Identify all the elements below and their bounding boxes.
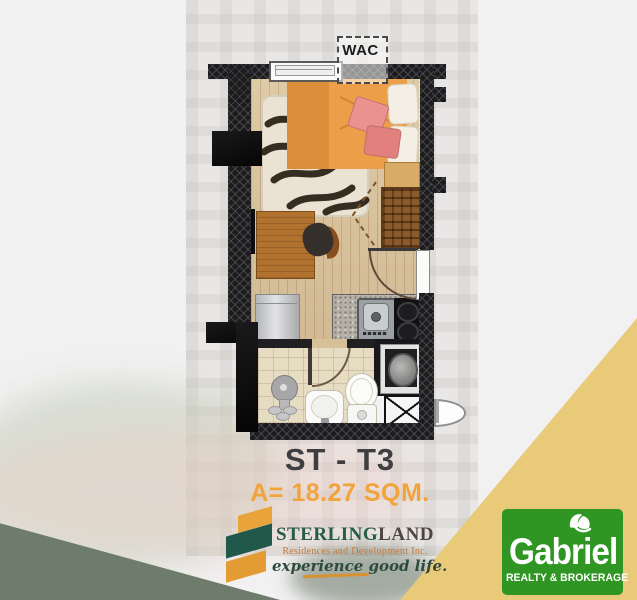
wall-right-lower [419, 293, 434, 440]
gabriel-wordmark: Gabriel [509, 531, 616, 573]
unit-code: ST - T3 [225, 442, 455, 478]
bed-bench [384, 162, 420, 188]
gabriel-subtitle: REALTY & BROKERAGE [506, 572, 619, 584]
shear-wall-vertical [236, 322, 258, 432]
sterling-tagline: experience good life. [272, 557, 438, 575]
wac-label: WAC [337, 42, 384, 59]
window-pane [275, 65, 335, 76]
shower-fitting [276, 412, 290, 421]
sterling-ribbon-s-icon [226, 511, 272, 585]
pink-cushion [363, 125, 402, 160]
unit-area: A= 18.27 SQM. [225, 479, 455, 508]
wardrobe-swing-dashes [350, 180, 380, 250]
wall-bathroom-top [347, 339, 375, 348]
wall-column-stub [432, 177, 446, 193]
wall-bathroom-top [256, 339, 312, 348]
bed-side-panel [287, 79, 331, 169]
gabriel-badge: Gabriel REALTY & BROKERAGE [502, 509, 623, 595]
marketing-flyer: WAC ST - T3 A= 18.27 SQM. STERLINGLAND R… [0, 0, 637, 600]
refrigerator [255, 294, 300, 340]
washer-drum [388, 353, 418, 387]
wall-column-stub [432, 87, 446, 102]
sink-controls [363, 332, 387, 335]
sterling-wordmark-secondary: LAND [378, 524, 434, 545]
sterling-logo: STERLINGLAND Residences and Development … [222, 505, 442, 597]
wall-bottom [250, 423, 434, 440]
burner [397, 302, 419, 322]
shower-head-center [280, 384, 287, 391]
wardrobe [381, 187, 423, 249]
sink-drain [371, 312, 381, 322]
toilet-bowl-inner [350, 378, 373, 405]
sterling-wordmark: STERLINGLAND [272, 524, 438, 546]
refrigerator-divider [256, 303, 297, 304]
ac-ledge [212, 131, 262, 166]
window-track [276, 69, 332, 70]
sterling-subtitle: Residences and Development Inc. [272, 546, 438, 557]
utility-hatch-leaf [436, 399, 439, 423]
sterling-wordmark-primary: STERLING [276, 524, 378, 545]
toilet-flush-button [357, 410, 367, 420]
bath-sink-basin [311, 395, 338, 419]
bed-pillow [387, 83, 419, 125]
wall-left [228, 64, 251, 332]
